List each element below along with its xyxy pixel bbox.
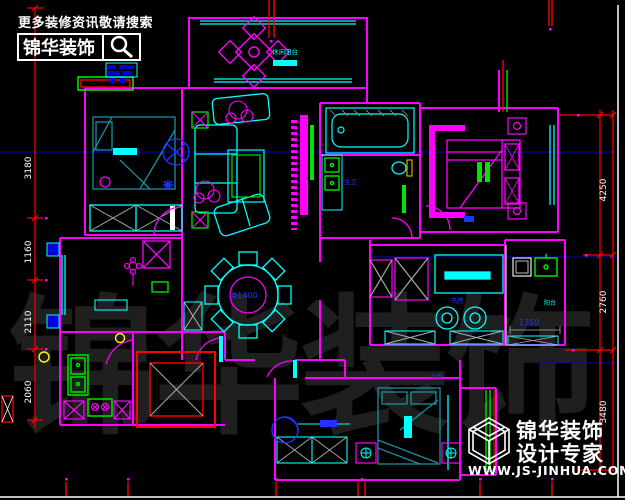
living-room — [192, 93, 314, 237]
dim-left-0: 3180 — [24, 156, 34, 179]
study-label: 书房 — [450, 296, 464, 305]
header: 更多装修资讯敬请搜索 锦华装饰 — [18, 15, 153, 83]
master-bed — [447, 140, 520, 208]
dim-left-3: 2060 — [24, 380, 34, 403]
search-brand-box: 锦华装饰 — [18, 34, 140, 60]
table-diameter-label: Φ1400 — [231, 291, 258, 300]
floorplan-canvas: 锦华装饰 — [0, 0, 625, 500]
bathtub — [326, 108, 414, 153]
bathroom-top: 主卫 — [322, 108, 414, 238]
header-slogan: 更多装修资讯敬请搜索 — [18, 15, 153, 31]
flue-lines — [503, 60, 507, 112]
shoe-cabinet — [143, 241, 170, 268]
balcony-top: 休闲阳台 — [219, 17, 298, 88]
label-block-small — [464, 216, 474, 222]
dim-right-0: 4250 — [599, 178, 609, 201]
plant-flower — [100, 177, 110, 187]
cad-floorplan-screenshot: 锦华装饰 — [0, 0, 625, 500]
door-arc-bathroom — [392, 218, 412, 238]
bathroom-sink — [322, 155, 342, 210]
footer-website: WWW.JS-JINHUA.COM — [468, 463, 625, 478]
asterisk-marker — [163, 180, 173, 190]
fridge — [513, 258, 531, 276]
closet-dim-label: 1350 — [519, 318, 539, 327]
footer-brand: 锦华装饰 — [516, 419, 604, 443]
dim-right-1: 2760 — [599, 290, 609, 313]
balcony-sub-label-block — [273, 60, 297, 66]
bedroom-topleft-label-block — [113, 148, 137, 155]
shower-bar — [402, 185, 406, 213]
balcony-right-label: 阳台 — [544, 299, 556, 307]
bathroom-label: 主卫 — [344, 177, 358, 186]
dim-left-1: 1160 — [24, 240, 34, 263]
door-leaf-cyan — [219, 336, 223, 362]
toilet-icon — [392, 160, 412, 176]
service-sink — [535, 254, 557, 276]
door-leaf-bedroom — [293, 360, 297, 378]
dim-left-2: 2110 — [24, 310, 34, 333]
master-bedroom — [426, 118, 526, 230]
balcony-top-label: 休闲阳台 — [272, 47, 298, 56]
tv-wall — [294, 115, 314, 230]
wardrobe-topleft — [90, 205, 182, 231]
search-icon — [112, 37, 132, 57]
desk-label-block — [320, 420, 337, 427]
bedroom-bottom-label: 主卧 — [430, 372, 444, 381]
bedroom-topleft — [90, 117, 189, 235]
closet-c-shape — [432, 128, 465, 215]
header-brand: 锦华装饰 — [23, 37, 95, 59]
